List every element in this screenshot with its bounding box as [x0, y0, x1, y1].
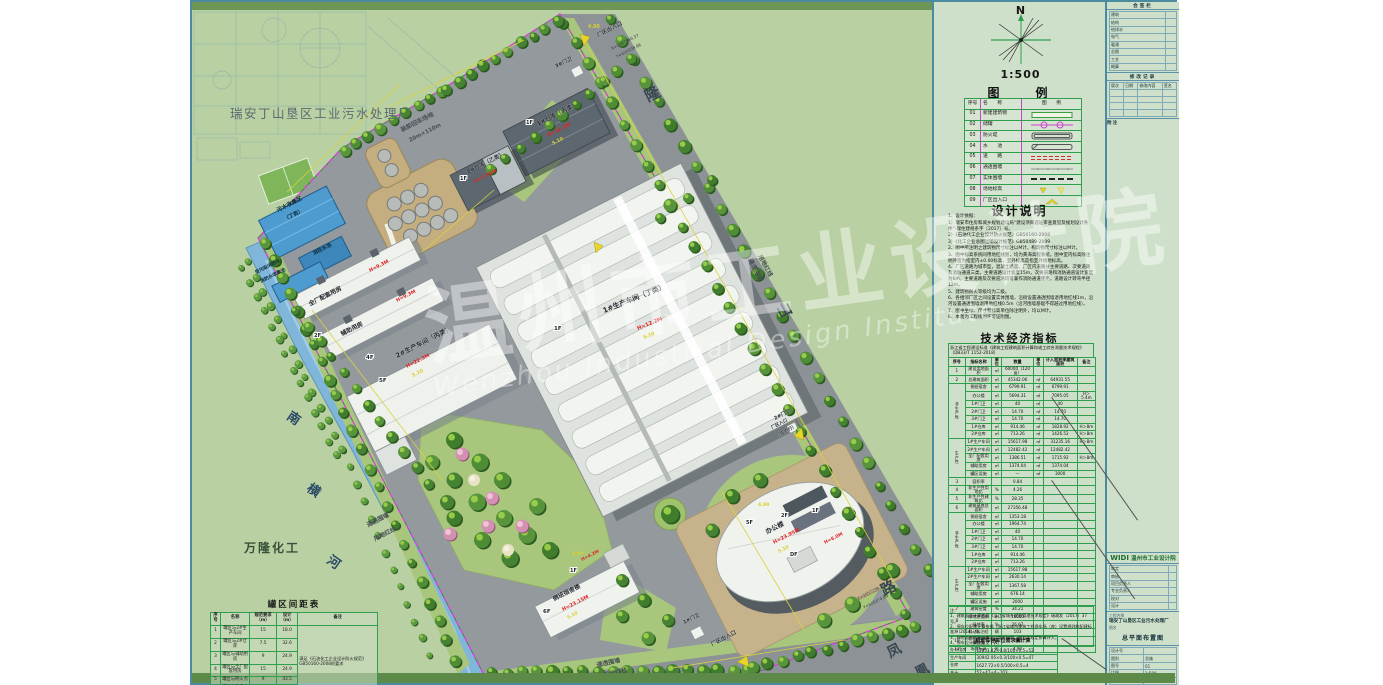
- table-cell: 3#门卫: [965, 415, 992, 423]
- table-cell: 倒班宿舍: [965, 513, 992, 521]
- table-cell: —: [1002, 470, 1034, 478]
- signature-rows: 审定审核项目负责人专业负责人校对设计: [1110, 565, 1177, 609]
- table-cell: [1033, 485, 1043, 494]
- table-cell: 27356.48: [1002, 504, 1034, 513]
- table-cell: 全厂配套用房: [965, 581, 992, 590]
- list-item: 3、图中标高系统同用地红线图，均为黄海高程系统。图中室内标高除注明外皆为指室内±…: [948, 253, 1094, 265]
- spacing-header: 备注: [298, 613, 378, 626]
- table-cell: ㎡: [1033, 431, 1043, 439]
- table-cell: 审定: [1110, 565, 1169, 572]
- table-cell: 电气: [1110, 34, 1166, 41]
- list-item: 6、各相邻厂区之间设置实体围墙，沿街设置通透围墙退用地红线1m，沿河设置通透围墙…: [948, 296, 1094, 308]
- table-cell: [1043, 513, 1077, 521]
- table-cell: [1077, 504, 1095, 513]
- table-cell: ㎡: [992, 504, 1002, 513]
- table-cell: [1077, 574, 1095, 582]
- signoff-section: 会签栏 建筑结构给排水电气暖通总图工艺概算: [1107, 2, 1179, 73]
- scale-label: 1:500: [934, 68, 1107, 81]
- table-cell: ㎡: [992, 376, 1002, 384]
- table-cell: 14.70: [1002, 543, 1034, 551]
- table-cell: 倒班宿舍: [965, 383, 992, 391]
- table-cell: ㎡: [992, 438, 1002, 446]
- list-item: 1、设计依据：: [948, 214, 1094, 220]
- table-cell: 3#门卫: [965, 543, 992, 551]
- legend-row: 05道 路: [965, 152, 1081, 163]
- table-cell: 676.14: [1002, 590, 1034, 598]
- table-cell: 2630.14: [1002, 574, 1034, 582]
- table-cell: 64931.55: [1043, 376, 1077, 384]
- table-cell: 专业负责人: [1110, 588, 1169, 595]
- table-cell: 建筑基底总面积: [965, 504, 992, 513]
- table-cell: 60000（120亩）: [1002, 367, 1034, 376]
- list-item: 2）《石油化工企业设计防火规范》GB50160-2008: [948, 233, 1094, 239]
- table-cell: [1077, 485, 1095, 494]
- tei-header: 单位: [1033, 358, 1043, 367]
- table-cell: [1077, 367, 1095, 376]
- dorm-floor-1f: 1F: [570, 568, 577, 574]
- table-cell: 1: [211, 625, 221, 638]
- table-cell: 1426.52: [1043, 431, 1077, 439]
- legend-row: 07实体围墙: [965, 174, 1081, 185]
- table-cell: 15617.98: [1002, 438, 1034, 446]
- table-cell: [1169, 580, 1177, 587]
- table-cell: ㎡: [992, 470, 1002, 478]
- table-cell: [1033, 367, 1043, 376]
- table-cell: ㎡: [992, 391, 1002, 400]
- fire-dike-symbol: [1022, 131, 1081, 141]
- table-cell: [1033, 536, 1043, 544]
- table-cell: 1#仓库: [965, 551, 992, 559]
- table-cell: [1077, 566, 1095, 574]
- table-cell: ㎡: [992, 536, 1002, 544]
- table-cell: [1169, 565, 1177, 572]
- table-cell: 914.46: [1002, 551, 1034, 559]
- table-cell: [1165, 19, 1176, 26]
- table-cell: [1077, 383, 1095, 391]
- table-cell: [1033, 551, 1043, 559]
- table-cell: 设计号: [1110, 648, 1144, 655]
- tank-spacing-title: 罐区间距表: [210, 598, 378, 610]
- table-cell: ㎡: [992, 551, 1002, 559]
- drawing-title: 总平面布置图: [1109, 631, 1177, 644]
- table-cell: 12482.42: [1043, 446, 1077, 454]
- table-cell: [1165, 12, 1176, 19]
- table-cell: ㎡: [992, 431, 1002, 439]
- tei-header: 序号: [949, 358, 966, 367]
- table-cell: 办公楼: [965, 521, 992, 529]
- table-cell: ㎡: [992, 559, 1002, 567]
- office-floor-1f: 1F: [812, 508, 819, 514]
- table-cell: 1386.51: [1002, 453, 1034, 462]
- revision-section: 修改记录 版次 日期 修改内容 签名: [1107, 73, 1179, 118]
- table-cell: [1043, 566, 1077, 574]
- table-cell: 1#门卫: [965, 528, 992, 536]
- dorm-floor-6f: 6F: [543, 609, 551, 615]
- table-cell: [1033, 598, 1043, 606]
- table-cell: 2000: [1002, 598, 1034, 606]
- table-cell: %: [992, 485, 1002, 494]
- table-cell: 仓库: [949, 662, 976, 670]
- table-cell: 生产车间: [949, 654, 976, 662]
- table-cell: 罐区与全厂配套用房: [220, 664, 249, 677]
- table-cell: 14.70: [1002, 415, 1034, 423]
- table-cell: 40: [1002, 400, 1034, 408]
- company-logo-row: WIDI 温州市工业设计院: [1107, 553, 1179, 564]
- table-cell: 非生产性: [949, 513, 966, 566]
- table-cell: 2#仓库: [965, 559, 992, 567]
- table-cell: 9: [250, 651, 277, 664]
- table-cell: ㎡: [1033, 463, 1043, 471]
- table-cell: 14.70: [1043, 415, 1077, 423]
- legend-row: 04水 池: [965, 141, 1081, 152]
- workshop2-floor-4f: 4F: [366, 355, 374, 361]
- site-plan: 瑞安丁山垦区工业污水处理厂 装卸回车场地 20m×110m 污水收集区 （丁类）…: [192, 10, 932, 679]
- tei-standard-note: 浙江省工程建设标准《建筑工程建筑面积计算和竣工综合测量技术规程》（DB33/T …: [948, 343, 1094, 358]
- table-cell: 4: [211, 664, 221, 677]
- table-cell: H＞5.4m: [1077, 391, 1095, 400]
- table-cell: 1715.92: [1043, 453, 1077, 462]
- table-cell: 暖通: [1110, 41, 1166, 48]
- table-cell: 15617.98: [1002, 566, 1034, 574]
- table-cell: [1077, 400, 1095, 408]
- north-label: N: [934, 4, 1107, 17]
- table-cell: ㎡: [1033, 446, 1043, 454]
- table-cell: ㎡: [992, 543, 1002, 551]
- legend-row: 03防火堤: [965, 130, 1081, 141]
- table-cell: 24.9: [276, 651, 297, 664]
- title-block: 会签栏 建筑结构给排水电气暖通总图工艺概算 修改记录 版次 日期 修改内容 签名…: [1105, 2, 1179, 685]
- table-cell: [1033, 521, 1043, 529]
- legend-and-indicators-panel: N 1:500 图 例 序号 名 称 图 例 01新建建筑物 02储罐 03防火…: [932, 2, 1105, 685]
- table-cell: 罐区设施: [965, 470, 992, 478]
- table-cell: 结构: [1110, 19, 1166, 26]
- table-cell: ㎡: [992, 400, 1002, 408]
- office-site-elevation: 4.90: [758, 502, 769, 508]
- table-cell: 9: [250, 677, 277, 685]
- office-floor-5f: 5F: [746, 520, 753, 526]
- table-cell: [1077, 551, 1095, 559]
- table-cell: ㎡: [992, 528, 1002, 536]
- table-cell: 5: [211, 677, 221, 685]
- table-cell: 6: [949, 504, 966, 513]
- drawing-sheet: 瑞安丁山垦区工业污水处理厂 装卸回车场地 20m×110m 污水收集区 （丁类）…: [190, 0, 1177, 685]
- design-notes: 1、设计依据：1）瑞安市住房和城乡规划建设局“建设项目选址审查意见及规划设计条件…: [948, 214, 1094, 322]
- legend-row: 01新建建筑物: [965, 109, 1081, 120]
- legend-header: 图 例: [1022, 102, 1081, 107]
- list-item: 7、图中坐标、尺寸和标高单位除注明外，均以M计。: [948, 309, 1094, 315]
- table-cell: 45342.06: [1002, 376, 1034, 384]
- table-cell: 1#生产车间: [965, 566, 992, 574]
- table-cell: 01: [1144, 662, 1177, 669]
- list-item: 4、厂区道路为城市型，混凝土路面。厂区内道路分主要道路、次要道路及消防通道三类，…: [948, 265, 1094, 289]
- table-cell: [1077, 559, 1095, 567]
- table-cell: [1043, 543, 1077, 551]
- table-cell: ㎡: [992, 513, 1002, 521]
- table-cell: ㎡: [992, 415, 1002, 423]
- legend-row: 08场地标高: [965, 184, 1081, 195]
- table-cell: 7095.05: [1043, 391, 1077, 400]
- table-cell: [1165, 26, 1176, 33]
- legend-row: 06通透围墙: [965, 163, 1081, 174]
- table-cell: [1165, 41, 1176, 48]
- table-cell: H＞8m: [1077, 423, 1095, 431]
- table-cell: 40: [1043, 400, 1077, 408]
- table-cell: 建设用地面积: [965, 367, 992, 376]
- table-cell: 12482.42: [1002, 446, 1034, 454]
- warehouse2-floor-tag: 1F: [460, 176, 467, 182]
- revision-header: 日期: [1124, 83, 1138, 90]
- table-cell: [1077, 590, 1095, 598]
- table-cell: [1043, 367, 1077, 376]
- table-cell: 图别: [1110, 655, 1144, 662]
- table-cell: [1043, 559, 1077, 567]
- signoff-rows: 建筑结构给排水电气暖通总图工艺概算: [1110, 12, 1177, 71]
- solid-fence-symbol: [1022, 175, 1081, 185]
- company-name: 温州市工业设计院: [1131, 554, 1176, 562]
- table-cell: 914.46: [1002, 423, 1034, 431]
- office-floor-df: DF: [790, 552, 798, 558]
- table-cell: 1374.04: [1002, 463, 1034, 471]
- table-cell: [1043, 551, 1077, 559]
- transparent-fence-symbol: [1022, 164, 1081, 174]
- parking-table-body: 办公用房12853.42×0.8/100×0.5=52生产车间30942.95×…: [949, 647, 1058, 677]
- list-item: 1）瑞安市住房和城乡规划建设局“建设项目选址审查意见及规划设计条件”-瑞住建规条…: [948, 221, 1094, 233]
- parking-calc-table: 机动车停车位需求量计算 办公用房12853.42×0.8/100×0.5=52生…: [948, 635, 1058, 677]
- table-cell: 总建筑面积: [965, 376, 992, 384]
- spacing-header: 规范要求（m）: [250, 613, 277, 626]
- table-cell: 1627.72×0.5/100×0.5=4: [975, 662, 1057, 670]
- table-cell: ㎡: [992, 463, 1002, 471]
- table-cell: ㎡: [992, 521, 1002, 529]
- table-cell: 5694.31: [1002, 391, 1034, 400]
- table-cell: ㎡: [992, 367, 1002, 376]
- table-cell: 办公用房: [949, 647, 976, 655]
- table-cell: [1169, 588, 1177, 595]
- table-cell: [1033, 566, 1043, 574]
- table-cell: 0.84: [1002, 478, 1034, 486]
- table-cell: ㎡: [992, 408, 1002, 416]
- table-cell: 1367.58: [1002, 581, 1034, 590]
- table-cell: ㎡: [992, 446, 1002, 454]
- table-cell: [1033, 504, 1043, 513]
- table-cell: 给排水: [1110, 26, 1166, 33]
- table-cell: 15: [250, 664, 277, 677]
- table-cell: ㎡: [992, 453, 1002, 462]
- table-cell: [1043, 478, 1077, 486]
- table-cell: 罐区设施: [965, 598, 992, 606]
- table-cell: ㎡: [1033, 438, 1043, 446]
- table-cell: [1033, 559, 1043, 567]
- table-cell: ㎡: [992, 383, 1002, 391]
- table-cell: 3000: [1043, 470, 1077, 478]
- table-cell: [1165, 56, 1176, 63]
- table-cell: ㎡: [1033, 400, 1043, 408]
- table-cell: 31235.16: [1043, 438, 1077, 446]
- table-cell: 30942.95×0.3/100×0.5=47: [975, 654, 1057, 662]
- table-cell: [1077, 470, 1095, 478]
- new-building-symbol: [1022, 110, 1081, 120]
- list-item: 2、图中所注明之建筑物尺寸标注以M计，构筑物尺寸标注以M计。: [948, 246, 1094, 252]
- table-cell: 28.35: [1002, 495, 1034, 504]
- table-cell: 生产性: [949, 438, 966, 478]
- table-cell: [1077, 415, 1095, 423]
- table-cell: 总图: [1110, 48, 1166, 55]
- project-name: 瑞安丁山垦区工业污水处理厂: [1109, 619, 1177, 625]
- table-cell: 713.26: [1002, 431, 1034, 439]
- table-cell: 罐区与2#生产车间: [220, 625, 249, 638]
- table-cell: 非生产性: [949, 383, 966, 438]
- table-cell: 2#门卫: [965, 408, 992, 416]
- table-cell: 设计: [1110, 602, 1169, 609]
- workshop1-floor-tag: 1F: [554, 326, 562, 332]
- signature-section: 审定审核项目负责人专业负责人校对设计: [1107, 564, 1179, 612]
- table-cell: ㎡: [1033, 423, 1043, 431]
- spacing-header: 名称: [220, 613, 249, 626]
- table-cell: 1353.18: [1002, 513, 1034, 521]
- remarks-section: 附注: [1107, 119, 1179, 553]
- table-cell: 总施: [1144, 655, 1177, 662]
- table-cell: 15: [250, 625, 277, 638]
- table-cell: 24.9: [276, 664, 297, 677]
- table-cell: 生产性: [949, 566, 966, 606]
- table-cell: [992, 478, 1002, 486]
- table-cell: ㎡: [1033, 391, 1043, 400]
- table-cell: 办公楼: [965, 391, 992, 400]
- table-cell: [1077, 478, 1095, 486]
- table-cell: ㎡: [1033, 408, 1043, 416]
- remarks-title: 附注: [1107, 120, 1179, 126]
- project-section: 工程名称 瑞安丁山垦区工业污水处理厂 图名 总平面布置图: [1107, 612, 1179, 646]
- table-cell: [1033, 581, 1043, 590]
- table-cell: 建筑: [1110, 12, 1166, 19]
- signoff-title: 会签栏: [1107, 3, 1179, 10]
- tei-header: 备注: [1077, 358, 1095, 367]
- workshop2-floor-5f: 5F: [379, 378, 387, 384]
- list-item: 5、建筑物耐火等级均为二级。: [948, 290, 1094, 296]
- table-cell: 工艺: [1110, 56, 1166, 63]
- table-cell: 32.6: [276, 638, 297, 651]
- legend-row: 02储罐: [965, 120, 1081, 131]
- storage-tank-symbol: [1022, 121, 1081, 131]
- table-cell: 4: [949, 485, 966, 494]
- table-cell: [1165, 34, 1176, 41]
- table-cell: 辅助用房: [965, 590, 992, 598]
- table-cell: 罐区与辅助用房: [220, 651, 249, 664]
- table-cell: [1169, 602, 1177, 609]
- table-cell: [1033, 574, 1043, 582]
- table-cell: [1077, 598, 1095, 606]
- spacing-header: 设计（m）: [276, 613, 297, 626]
- table-cell: ㎡: [1033, 383, 1043, 391]
- table-cell: ㎡: [992, 574, 1002, 582]
- table-cell: 罐区与明火点: [220, 677, 249, 685]
- table-cell: 项目负责人: [1110, 580, 1169, 587]
- table-cell: 2#仓库: [965, 431, 992, 439]
- table-cell: 7.5: [250, 638, 277, 651]
- table-cell: 3: [211, 651, 221, 664]
- list-item: 3）《化工企业总图运输设计规范》GB50489-2009: [948, 240, 1094, 246]
- tank-spacing-table: 罐区间距表 序号 名称 规范要求（m） 设计（m） 备注 1罐区与2#生产车间1…: [210, 598, 378, 685]
- table-cell: 1#生产车间: [965, 438, 992, 446]
- table-cell: [1043, 536, 1077, 544]
- table-cell: 2: [949, 376, 966, 384]
- legend-header-row: 序号 名 称 图 例: [965, 99, 1081, 109]
- table-cell: 图号: [1110, 662, 1144, 669]
- table-cell: [1033, 528, 1043, 536]
- table-cell: [1033, 478, 1043, 486]
- legend-header: 名 称: [980, 99, 1022, 109]
- table-cell: ㎡: [992, 566, 1002, 574]
- revision-header: 版次: [1110, 83, 1124, 90]
- table-cell: [1077, 376, 1095, 384]
- table-cell: [1033, 543, 1043, 551]
- table-cell: [1043, 574, 1077, 582]
- list-item: 2、停车位配建计算依据《浙江省城市建筑工程停车场（库）设置规则和配建标准》〔20…: [950, 624, 1092, 635]
- table-cell: 4.26: [1002, 485, 1034, 494]
- table-cell: [1077, 495, 1095, 504]
- table-cell: [1169, 573, 1177, 580]
- table-cell: [1043, 590, 1077, 598]
- table-cell: ㎡: [992, 581, 1002, 590]
- table-cell: 43.5: [276, 677, 297, 685]
- spacing-header: 序号: [211, 613, 221, 626]
- table-cell: 满足《石油化工企业设计防火规范》GB50160-2008的要求: [298, 625, 378, 685]
- office-floor-2f: 2F: [781, 513, 788, 519]
- table-cell: ㎡: [1033, 453, 1043, 462]
- table-cell: ㎡: [1033, 376, 1043, 384]
- table-cell: 14.70: [1002, 408, 1034, 416]
- parking-calc-title: 机动车停车位需求量计算: [948, 635, 1058, 646]
- table-cell: [1043, 598, 1077, 606]
- tei-header: 计入容积率建筑面积: [1043, 358, 1077, 367]
- table-cell: ㎡: [1033, 470, 1043, 478]
- table-cell: 12853.42×0.8/100×0.5=52: [975, 647, 1057, 655]
- revision-title: 修改记录: [1107, 74, 1179, 81]
- table-cell: 2: [211, 638, 221, 651]
- table-cell: ㎡: [992, 598, 1002, 606]
- table-cell: ㎡: [992, 590, 1002, 598]
- table-cell: [1033, 513, 1043, 521]
- table-cell: 罐区与2#仓库: [220, 638, 249, 651]
- table-cell: 6799.91: [1002, 383, 1034, 391]
- table-cell: 5: [949, 495, 966, 504]
- table-cell: 713.26: [1002, 559, 1034, 567]
- table-cell: 辅助用房: [965, 463, 992, 471]
- table-cell: 14.70: [1002, 536, 1034, 544]
- legend-table: 序号 名 称 图 例 01新建建筑物 02储罐 03防火堤 04水 池 05道 …: [964, 98, 1082, 207]
- entrance-top-elevation: 4.90: [588, 24, 600, 30]
- plant-title: 瑞安丁山垦区工业污水处理厂: [230, 106, 412, 121]
- table-cell: [1033, 495, 1043, 504]
- table-cell: [1077, 581, 1095, 590]
- drawing-sheet-stage: 瑞安丁山垦区工业污水处理厂 装卸回车场地 20m×110m 污水收集区 （丁类）…: [0, 0, 1383, 685]
- table-cell: [1033, 590, 1043, 598]
- spacing-table-body: 1罐区与2#生产车间1518.0满足《石油化工企业设计防火规范》GB50160-…: [211, 625, 378, 685]
- adjacent-factory-label: 万隆化工: [243, 540, 300, 555]
- revision-header: 修改内容: [1138, 83, 1162, 90]
- table-cell: 6799.91: [1043, 383, 1077, 391]
- table-cell: [1043, 581, 1077, 590]
- table-cell: 1964.74: [1002, 521, 1034, 529]
- dorm-site-elevation: 4.90: [572, 551, 583, 557]
- table-cell: [1077, 543, 1095, 551]
- legend-header: 序号: [965, 102, 980, 107]
- table-cell: [1165, 63, 1176, 70]
- table-cell: 18.0: [276, 625, 297, 638]
- widi-logo: WIDI: [1110, 554, 1129, 562]
- table-cell: [1043, 495, 1077, 504]
- table-cell: 40: [1002, 528, 1034, 536]
